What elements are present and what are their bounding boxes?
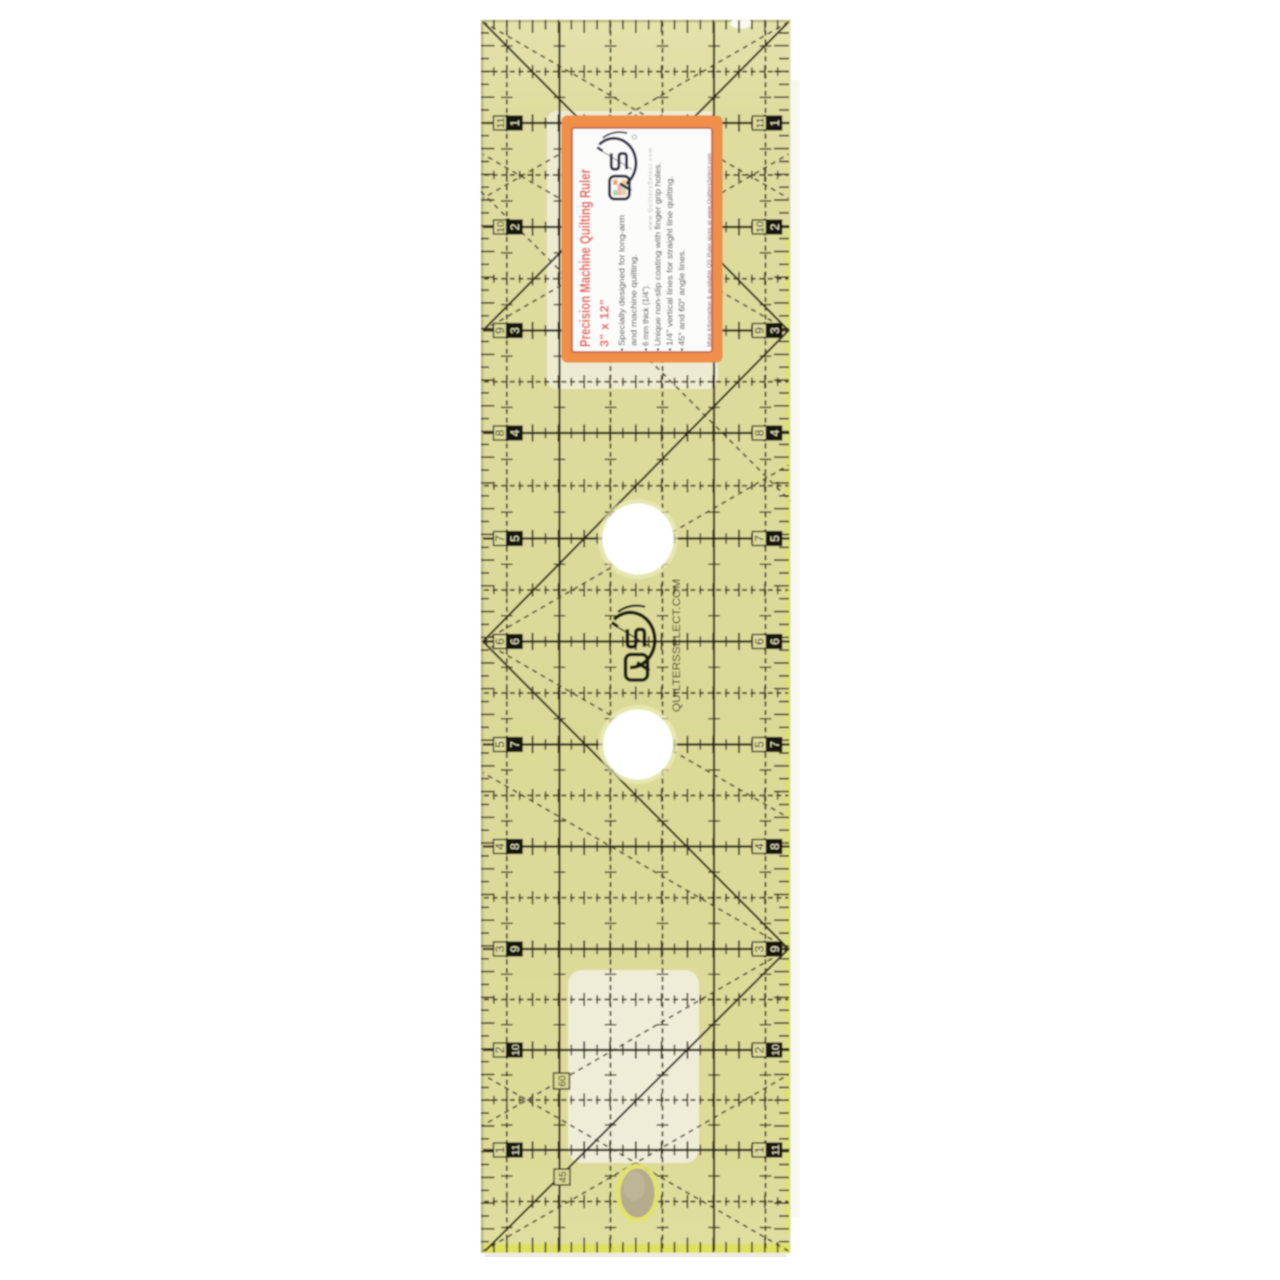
svg-text:6: 6 [508, 638, 522, 645]
svg-text:Specially designed for long-ar: Specially designed for long-arm [618, 215, 627, 346]
svg-text:60: 60 [558, 1075, 569, 1087]
svg-text:1: 1 [508, 119, 522, 126]
svg-text:1/4” vertical lines for straig: 1/4” vertical lines for straight line qu… [666, 176, 675, 346]
svg-text:8: 8 [493, 429, 507, 436]
svg-text:6: 6 [493, 638, 507, 645]
svg-text:45: 45 [558, 1171, 569, 1183]
svg-text:5: 5 [508, 535, 522, 542]
svg-text:4: 4 [508, 429, 522, 436]
svg-text:9: 9 [753, 327, 767, 334]
svg-text:8: 8 [753, 429, 767, 436]
svg-text:2: 2 [768, 223, 782, 230]
svg-text:More information & available Q: More information & available QS Ruler si… [707, 153, 713, 347]
svg-text:6: 6 [753, 638, 767, 645]
svg-text:9: 9 [768, 945, 782, 952]
svg-text:4: 4 [768, 429, 782, 436]
svg-text:2: 2 [493, 1046, 507, 1053]
svg-text:4: 4 [753, 843, 767, 850]
svg-text:3: 3 [508, 327, 522, 334]
svg-text:10: 10 [755, 221, 767, 233]
svg-text:7: 7 [508, 741, 522, 748]
svg-text:QUILTERSSELECT.COM: QUILTERSSELECT.COM [671, 579, 683, 712]
svg-text:11: 11 [770, 1144, 782, 1155]
svg-text:Unique non-slip coating with f: Unique non-slip coating with finger grip… [654, 162, 663, 346]
svg-text:3: 3 [493, 945, 507, 952]
svg-text:8: 8 [508, 843, 522, 850]
svg-text:Precision Machine Quilting Rul: Precision Machine Quilting Ruler [578, 169, 594, 347]
svg-text:1: 1 [768, 119, 782, 126]
svg-text:11: 11 [755, 117, 767, 128]
svg-text:7: 7 [493, 535, 507, 542]
svg-text:3: 3 [768, 327, 782, 334]
svg-text:4: 4 [493, 843, 507, 850]
svg-text:3” x 12”: 3” x 12” [598, 299, 612, 347]
svg-text:5: 5 [768, 535, 782, 542]
svg-text:and machine quilting.: and machine quilting. [630, 254, 639, 346]
svg-text:1: 1 [493, 1146, 507, 1153]
svg-text:7: 7 [768, 741, 782, 748]
svg-text:11: 11 [495, 117, 507, 128]
svg-text:2: 2 [508, 223, 522, 230]
svg-text:45° and 60° angle lines.: 45° and 60° angle lines. [678, 249, 687, 346]
svg-text:10: 10 [770, 1044, 782, 1056]
svg-text:9: 9 [493, 327, 507, 334]
svg-text:6: 6 [768, 638, 782, 645]
svg-text:1: 1 [753, 1146, 767, 1153]
svg-text:10: 10 [495, 221, 507, 233]
svg-text:7: 7 [753, 535, 767, 542]
svg-text:10: 10 [510, 1044, 522, 1056]
svg-text:2: 2 [753, 1046, 767, 1053]
svg-text:11: 11 [510, 1144, 522, 1155]
svg-text:5: 5 [753, 741, 767, 748]
svg-text:5: 5 [493, 741, 507, 748]
svg-text:8: 8 [768, 843, 782, 850]
svg-text:9: 9 [508, 945, 522, 952]
svg-text:6 mm thick (1/4”).: 6 mm thick (1/4”). [642, 284, 651, 346]
svg-text:3: 3 [753, 945, 767, 952]
